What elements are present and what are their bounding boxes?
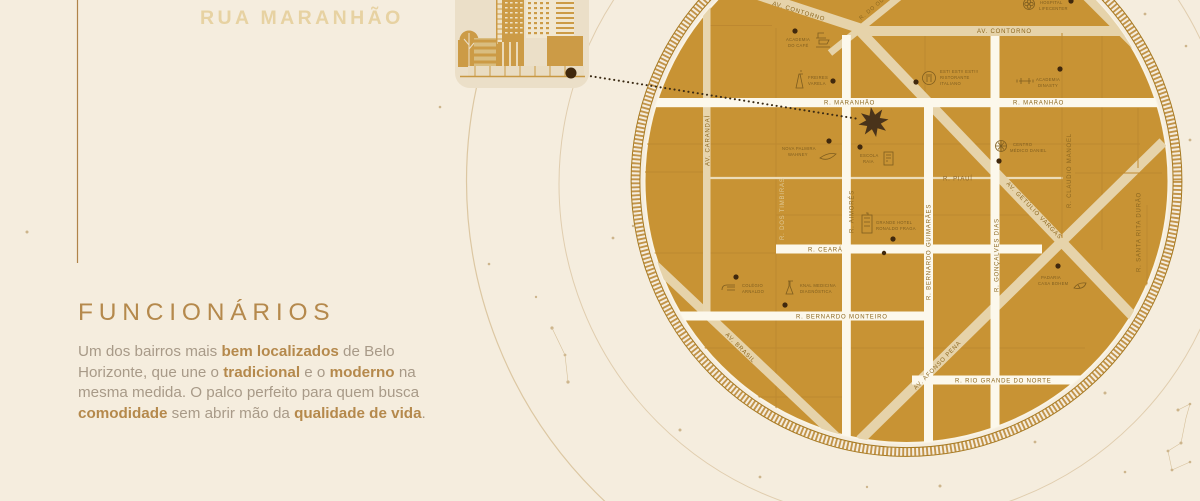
svg-text:DO CAFÉ: DO CAFÉ: [788, 43, 809, 48]
svg-text:AV. CARANDAÍ: AV. CARANDAÍ: [705, 115, 712, 166]
svg-text:RAIA: RAIA: [863, 159, 874, 164]
svg-text:R. CLAUDIO MANOEL: R. CLAUDIO MANOEL: [1067, 133, 1073, 208]
svg-text:RISTORANTE: RISTORANTE: [940, 75, 970, 80]
svg-text:ACADEMIA: ACADEMIA: [786, 37, 810, 42]
svg-text:ACADEMIA: ACADEMIA: [1036, 77, 1060, 82]
svg-text:NOVA PALMIRA: NOVA PALMIRA: [782, 146, 816, 151]
svg-text:MÉDICO DANIEL: MÉDICO DANIEL: [1010, 148, 1047, 153]
svg-text:KNAL MEDICINA: KNAL MEDICINA: [800, 283, 836, 288]
svg-text:ARNALDO: ARNALDO: [742, 289, 765, 294]
svg-text:WAHNEY: WAHNEY: [788, 152, 808, 157]
svg-text:R. SANTA RITA DURÃO: R. SANTA RITA DURÃO: [1136, 192, 1143, 272]
svg-text:DIAGNÓSTICA: DIAGNÓSTICA: [800, 289, 832, 294]
svg-text:AV. CONTORNO: AV. CONTORNO: [977, 29, 1032, 35]
svg-text:PADARIA: PADARIA: [1041, 275, 1061, 280]
svg-text:R. AIMORÉS: R. AIMORÉS: [849, 190, 856, 233]
svg-text:COLÉGIO: COLÉGIO: [742, 283, 763, 288]
svg-text:R. CEARÁ: R. CEARÁ: [808, 247, 843, 254]
svg-text:HOSPITAL: HOSPITAL: [1040, 0, 1063, 5]
svg-text:ITALIANO: ITALIANO: [940, 81, 961, 86]
svg-text:CASA BOHEM: CASA BOHEM: [1038, 281, 1069, 286]
svg-text:R. GONÇALVES DIAS: R. GONÇALVES DIAS: [995, 218, 1001, 292]
svg-text:FREIRES: FREIRES: [808, 75, 828, 80]
svg-text:R. MARANHÃO: R. MARANHÃO: [1013, 100, 1064, 107]
svg-text:R. BERNARDO MONTEIRO: R. BERNARDO MONTEIRO: [796, 315, 888, 321]
svg-text:R. RIO GRANDE DO NORTE: R. RIO GRANDE DO NORTE: [955, 379, 1052, 385]
svg-text:GRANDE HOTEL: GRANDE HOTEL: [876, 220, 913, 225]
svg-text:CENTRO: CENTRO: [1013, 142, 1033, 147]
svg-text:R. DOS TIMBIRAS: R. DOS TIMBIRAS: [780, 177, 786, 240]
svg-text:VARELA: VARELA: [808, 81, 826, 86]
svg-text:ESCOLA: ESCOLA: [860, 153, 879, 158]
svg-text:LIFECENTER: LIFECENTER: [1039, 6, 1068, 11]
svg-text:R. PIAUÍ: R. PIAUÍ: [943, 176, 973, 183]
svg-text:R. BERNARDO GUIMARÃES: R. BERNARDO GUIMARÃES: [926, 204, 933, 300]
svg-text:DINASTY: DINASTY: [1038, 83, 1058, 88]
svg-text:R. MARANHÃO: R. MARANHÃO: [824, 100, 875, 107]
svg-text:RONALDO FRAGA: RONALDO FRAGA: [876, 226, 916, 231]
svg-text:EST! EST!! EST!!!: EST! EST!! EST!!!: [940, 69, 978, 74]
